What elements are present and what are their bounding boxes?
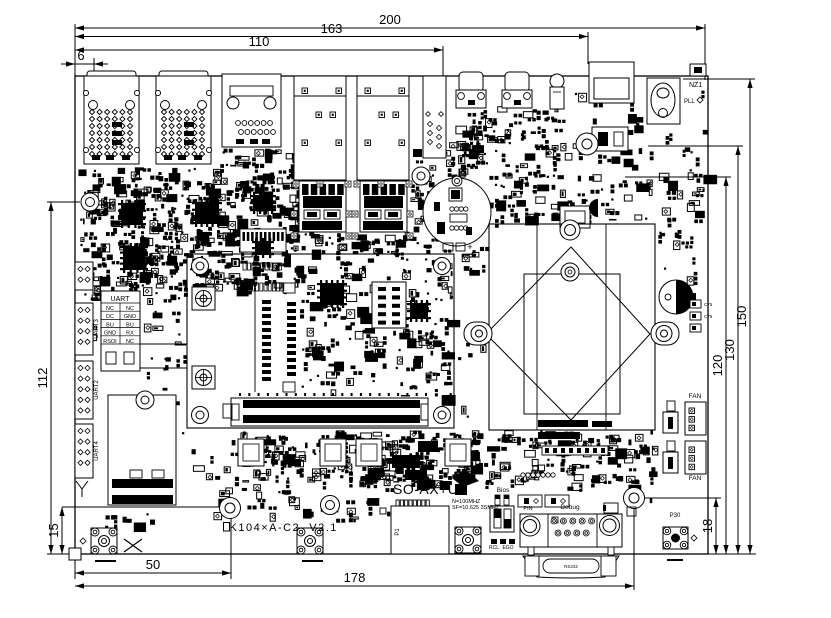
svg-text:Debug: Debug bbox=[560, 504, 580, 511]
svg-text:P30: P30 bbox=[670, 513, 681, 519]
svg-text:BU: BU bbox=[126, 322, 134, 328]
svg-text:163: 163 bbox=[321, 21, 343, 36]
svg-text:15: 15 bbox=[46, 523, 61, 537]
svg-text:GND: GND bbox=[104, 331, 116, 337]
svg-text:SF=10.625 3SMHZ: SF=10.625 3SMHZ bbox=[452, 505, 500, 511]
svg-text:Bios: Bios bbox=[497, 487, 510, 494]
svg-text:6: 6 bbox=[77, 48, 84, 63]
svg-text:NC: NC bbox=[106, 306, 114, 312]
svg-text:PLL: PLL bbox=[684, 99, 695, 105]
svg-text:SO-AX+U: SO-AX+U bbox=[393, 481, 458, 497]
svg-text:110: 110 bbox=[249, 34, 270, 49]
svg-text:NZ1: NZ1 bbox=[689, 82, 702, 89]
svg-text:UART3: UART3 bbox=[94, 319, 100, 339]
svg-text:FAN: FAN bbox=[689, 393, 702, 400]
svg-text:FAN: FAN bbox=[689, 475, 702, 482]
svg-text:BU: BU bbox=[106, 322, 114, 328]
svg-text:RSOI: RSOI bbox=[103, 339, 117, 345]
svg-text:130: 130 bbox=[722, 339, 737, 361]
svg-text:RCL: RCL bbox=[489, 545, 499, 551]
svg-text:RX: RX bbox=[126, 331, 134, 337]
svg-text:18: 18 bbox=[700, 519, 715, 533]
svg-text:112: 112 bbox=[35, 368, 50, 389]
svg-text:NC: NC bbox=[126, 306, 134, 312]
svg-text:UART: UART bbox=[111, 296, 131, 303]
svg-text:GND: GND bbox=[124, 314, 136, 320]
svg-text:UART4: UART4 bbox=[94, 441, 100, 461]
svg-text:PIN: PIN bbox=[523, 506, 532, 512]
svg-text:RS232: RS232 bbox=[564, 564, 578, 569]
svg-text:+: + bbox=[467, 242, 472, 252]
svg-text:NC: NC bbox=[126, 339, 134, 345]
svg-text:178: 178 bbox=[344, 570, 366, 585]
svg-text:P1: P1 bbox=[395, 528, 401, 536]
svg-text:UART2: UART2 bbox=[94, 380, 100, 400]
svg-text:150: 150 bbox=[734, 306, 749, 328]
svg-text:200: 200 bbox=[379, 12, 401, 27]
svg-text:50: 50 bbox=[146, 557, 160, 572]
svg-text:K104×A-C2 V2.1: K104×A-C2 V2.1 bbox=[230, 522, 338, 534]
svg-text:DC: DC bbox=[106, 314, 114, 320]
svg-text:C76: C76 bbox=[704, 314, 713, 319]
svg-text:C75: C75 bbox=[704, 302, 713, 307]
svg-text:EGO: EGO bbox=[502, 545, 513, 551]
